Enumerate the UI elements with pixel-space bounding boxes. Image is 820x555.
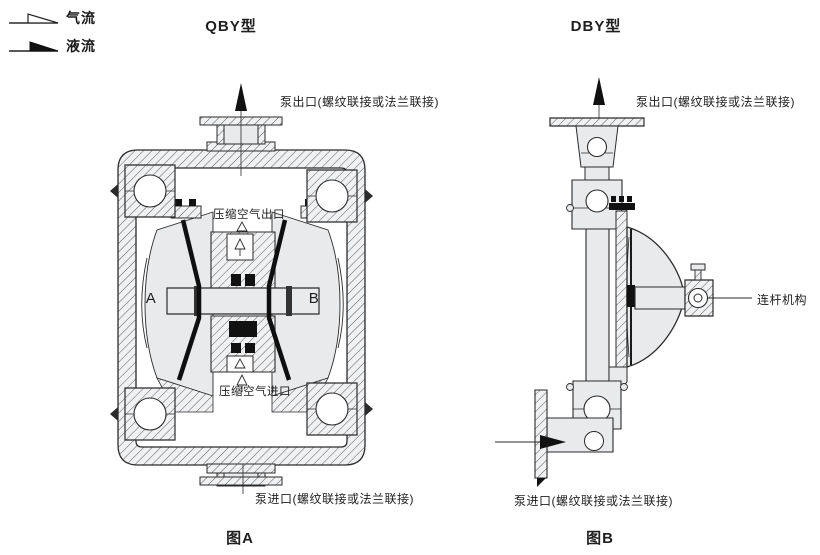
qby-inlet-label: 泵进口(螺纹联接或法兰联接) (255, 490, 414, 507)
outlet-flow-arrow (235, 83, 247, 111)
liquid-flow-arrow-icon (6, 36, 60, 56)
valve-spool (245, 274, 255, 286)
legend-air-flow-row: 气流 (6, 4, 96, 32)
valve-ball (586, 190, 608, 212)
legend-liquid-flow-row: 液流 (6, 32, 96, 60)
figure-b-caption: 图B (586, 527, 614, 548)
inlet-elbow (547, 418, 613, 452)
connecting-rod (635, 287, 685, 309)
inlet-flange (200, 477, 282, 485)
block-bolt (691, 264, 705, 270)
dby-inlet-label: 泵进口(螺纹联接或法兰联接) (514, 492, 673, 509)
air-valve-block (211, 222, 275, 288)
qby-air-inlet-label: 压缩空气进口 (219, 383, 291, 399)
legend-air-flow-label: 气流 (66, 8, 96, 28)
figure-b-title: DBY型 (571, 15, 622, 36)
housing-flange-plate (616, 211, 627, 381)
inlet-flange (535, 390, 547, 478)
pump-structure-diagram: 气流 液流 QBY型 DBY型 (0, 0, 820, 555)
flow-legend: 气流 液流 (6, 4, 96, 60)
figure-a-caption: 图A (226, 527, 254, 548)
valve-ball (588, 138, 607, 157)
qby-pump-drawing (95, 80, 395, 520)
legend-liquid-flow-label: 液流 (66, 36, 96, 56)
air-flow-arrow-icon (6, 8, 60, 28)
dby-linkage-label: 连杆机构 (757, 291, 807, 308)
outlet-flange (550, 118, 644, 126)
piston-rod (167, 288, 319, 314)
qby-outlet-label: 泵出口(螺纹联接或法兰联接) (280, 93, 439, 110)
inlet-port-plate (207, 464, 275, 473)
riser-pipe (586, 229, 609, 381)
outlet-flow-arrow (593, 77, 605, 105)
dby-outlet-label: 泵出口(螺纹联接或法兰联接) (636, 93, 795, 110)
air-inlet-block (211, 316, 275, 372)
qby-air-outlet-label: 压缩空气出口 (213, 206, 285, 222)
valve-spool (231, 274, 241, 286)
qby-chamber-a-label: A (146, 290, 157, 307)
valve-spool (229, 321, 257, 337)
figure-a-title: QBY型 (205, 15, 257, 36)
qby-chamber-b-label: B (309, 290, 320, 307)
